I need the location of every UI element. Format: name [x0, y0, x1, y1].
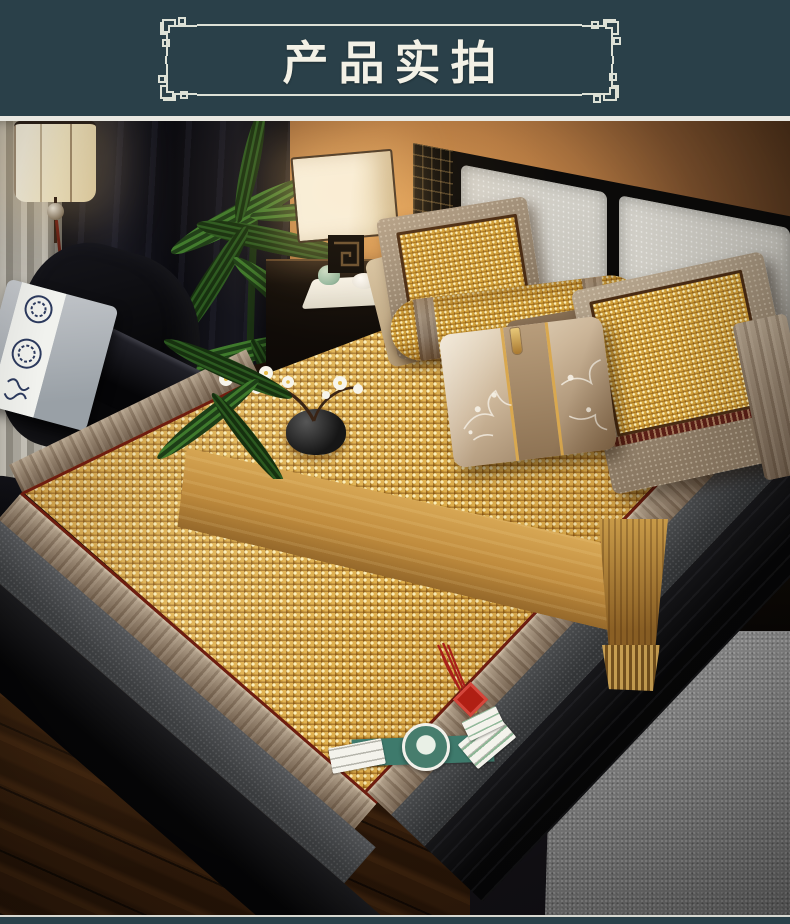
lamp-bead — [47, 203, 64, 220]
care-tag-left — [328, 738, 386, 774]
satin-sheen — [438, 316, 617, 469]
product-detail-section: 产品实拍 — [0, 0, 790, 924]
runner-fringe — [602, 645, 660, 691]
lamp-shade — [14, 121, 96, 202]
bottom-accent-band — [0, 915, 790, 924]
medallion-band — [0, 282, 66, 418]
section-header-banner: 产品实拍 — [0, 0, 790, 116]
product-photo — [0, 121, 790, 915]
red-chinese-knot-tassel — [428, 639, 508, 743]
section-title: 产品实拍 — [167, 26, 612, 94]
palm-plant-front-fronds — [138, 309, 318, 479]
lamp-fret-base — [328, 235, 364, 273]
decorative-chinese-frame: 产品实拍 — [165, 24, 614, 96]
satin-embroidered-pillow — [438, 316, 617, 469]
